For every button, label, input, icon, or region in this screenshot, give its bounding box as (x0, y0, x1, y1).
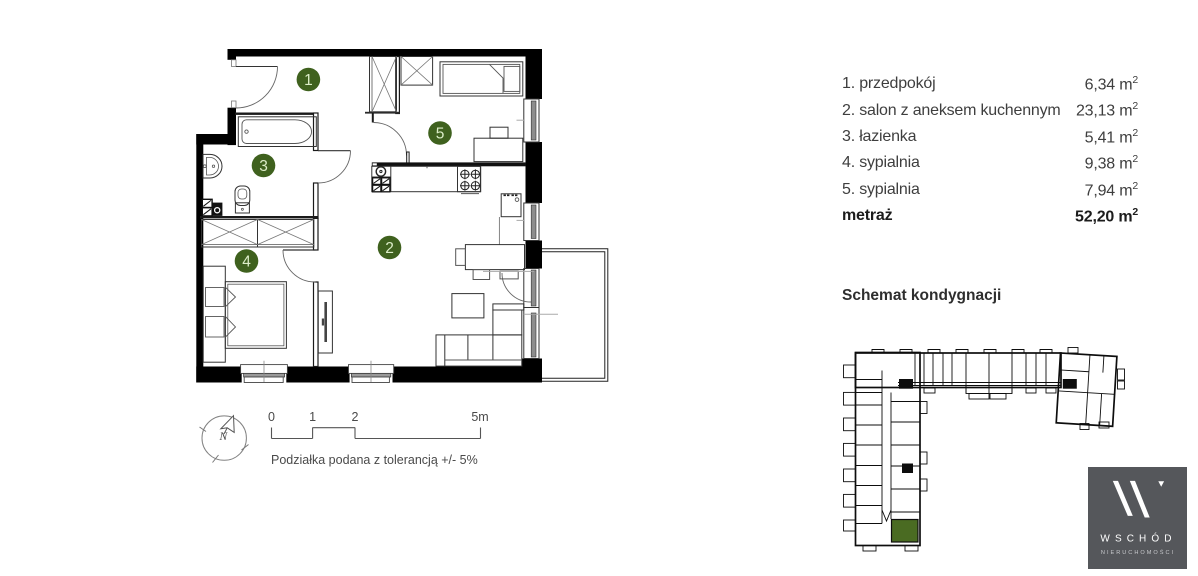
svg-text:WSCHÓD: WSCHÓD (1100, 531, 1176, 544)
svg-text:NIERUCHOMOŚCI: NIERUCHOMOŚCI (1100, 548, 1174, 556)
